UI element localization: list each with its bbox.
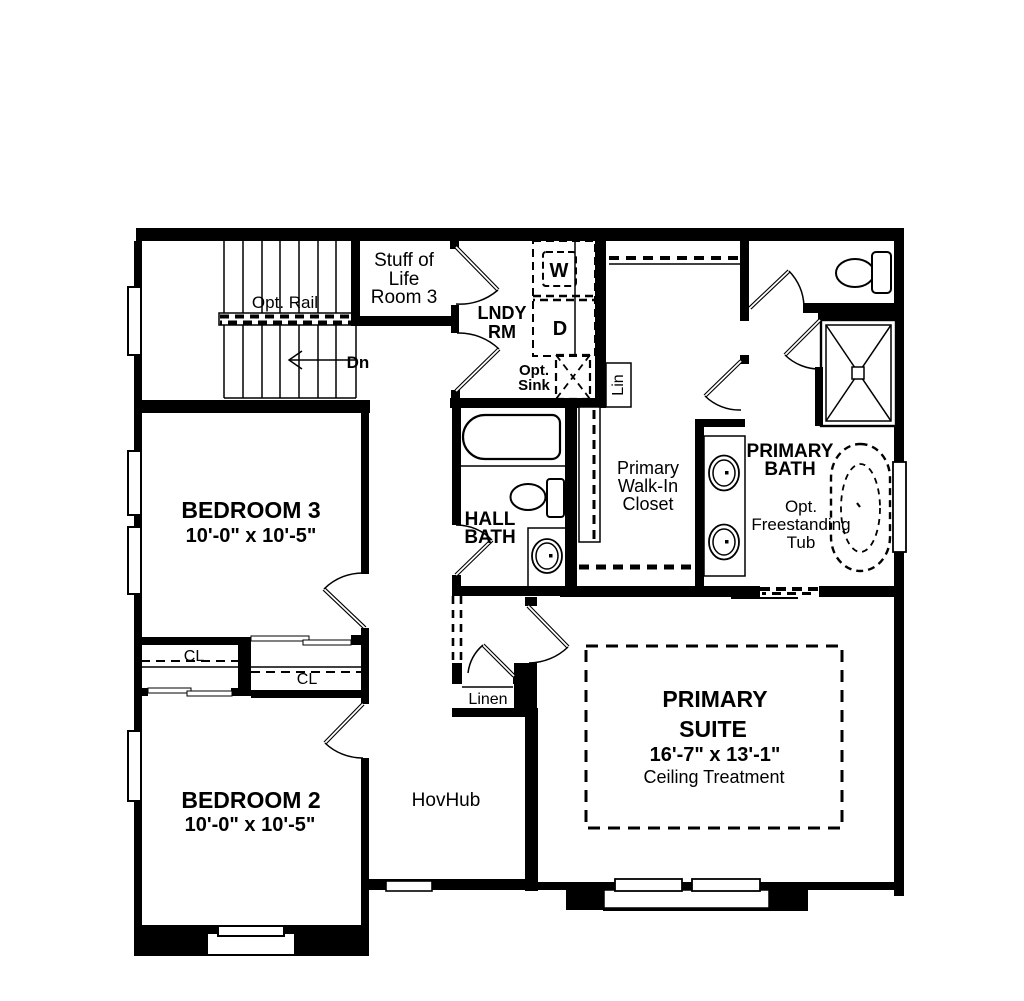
svg-text:SUITE: SUITE <box>679 716 747 742</box>
svg-text:PRIMARY: PRIMARY <box>662 686 767 712</box>
svg-text:10'-0" x 10'-5": 10'-0" x 10'-5" <box>185 814 316 836</box>
svg-text:Stuff of: Stuff of <box>374 250 435 271</box>
svg-text:Tub: Tub <box>787 533 816 552</box>
svg-text:Linen: Linen <box>468 691 507 708</box>
svg-text:Primary: Primary <box>617 458 679 478</box>
svg-text:CL: CL <box>184 648 205 665</box>
svg-text:BATH: BATH <box>464 527 515 548</box>
svg-text:HovHub: HovHub <box>412 790 481 811</box>
svg-text:Dn: Dn <box>347 353 370 372</box>
svg-text:Walk-In: Walk-In <box>618 476 678 496</box>
svg-text:W: W <box>550 260 569 282</box>
svg-text:Closet: Closet <box>622 494 673 514</box>
svg-text:RM: RM <box>488 322 516 342</box>
svg-text:Opt.: Opt. <box>785 497 817 516</box>
svg-text:BEDROOM 3: BEDROOM 3 <box>181 497 320 523</box>
svg-text:10'-0" x 10'-5": 10'-0" x 10'-5" <box>186 525 317 547</box>
svg-text:CL: CL <box>297 671 318 688</box>
svg-text:BATH: BATH <box>764 459 815 480</box>
svg-text:BEDROOM 2: BEDROOM 2 <box>181 787 320 813</box>
svg-text:16'-7" x 13'-1": 16'-7" x 13'-1" <box>650 744 781 766</box>
svg-text:Freestanding: Freestanding <box>751 515 850 534</box>
svg-text:Ceiling Treatment: Ceiling Treatment <box>643 767 784 787</box>
svg-text:Opt. Rail: Opt. Rail <box>252 293 318 312</box>
svg-text:Room 3: Room 3 <box>371 287 438 308</box>
svg-text:Lin: Lin <box>610 374 627 395</box>
svg-text:LNDY: LNDY <box>478 303 527 323</box>
svg-text:Sink: Sink <box>518 377 550 394</box>
svg-text:D: D <box>553 318 567 340</box>
